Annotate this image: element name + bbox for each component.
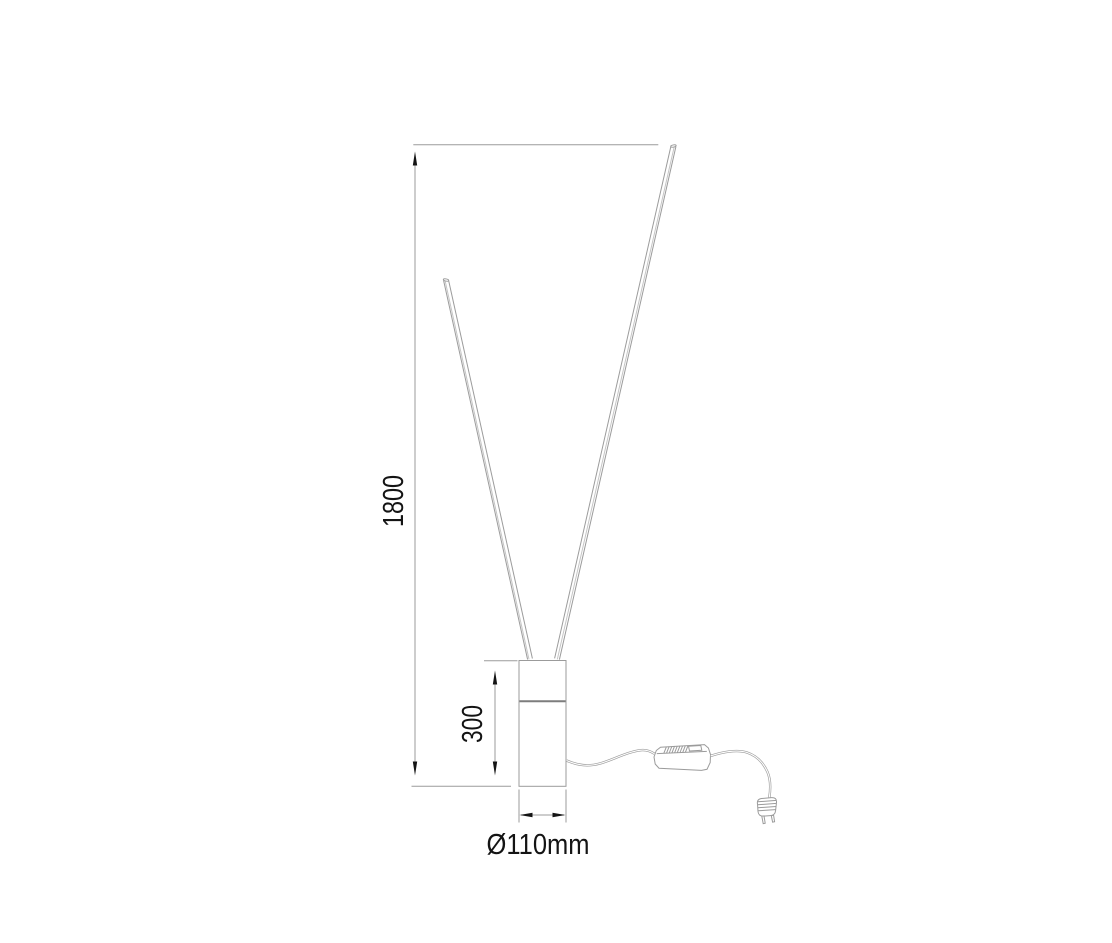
right-rod-inner-edge [555,145,672,658]
lamp-dimension-drawing: 1800 [0,0,1112,943]
right-rod-body [555,145,676,659]
arrow-down-icon [493,762,497,776]
cord-core [711,751,770,797]
cylindrical-base [519,661,566,787]
driver-box-outline [654,745,711,771]
cord-outline [567,750,655,765]
lamp-drawing [443,144,676,786]
right-rod-highlight [557,146,674,659]
base-cylinder-outline [519,661,566,787]
left-rod-outer-edge [444,281,528,660]
arrow-up-icon [413,152,417,166]
power-assembly [567,745,777,824]
height-dimension: 1800 [378,145,658,787]
power-plug [757,798,776,824]
led-driver-box [654,745,711,771]
left-light-rod [443,278,532,659]
base-height-dimension-label: 300 [457,705,489,743]
left-rod-inner-edge [448,280,532,659]
arrow-right-icon [553,813,566,818]
right-light-rod [555,144,677,659]
left-rod-highlight [445,280,529,659]
arrow-up-icon [493,671,497,685]
base-height-dimension: 300 [457,661,518,776]
cord-outline [711,751,770,797]
driver-box-label-plate [689,746,702,752]
technical-drawing-canvas: 1800 [0,0,1112,943]
power-cord-driver-to-plug [711,751,770,797]
arrow-down-icon [413,762,417,776]
arrow-left-icon [520,813,533,818]
right-rod-outer-edge [559,147,676,660]
plug-prong-left [762,816,765,824]
power-cord-base-to-driver [567,750,655,765]
base-diameter-dimension-label: Ø110mm [487,829,590,861]
cord-core [567,750,655,765]
left-rod-body [444,280,533,660]
height-dimension-label: 1800 [378,475,410,527]
base-diameter-dimension: Ø110mm [487,790,590,862]
plug-prong-right [771,815,774,822]
